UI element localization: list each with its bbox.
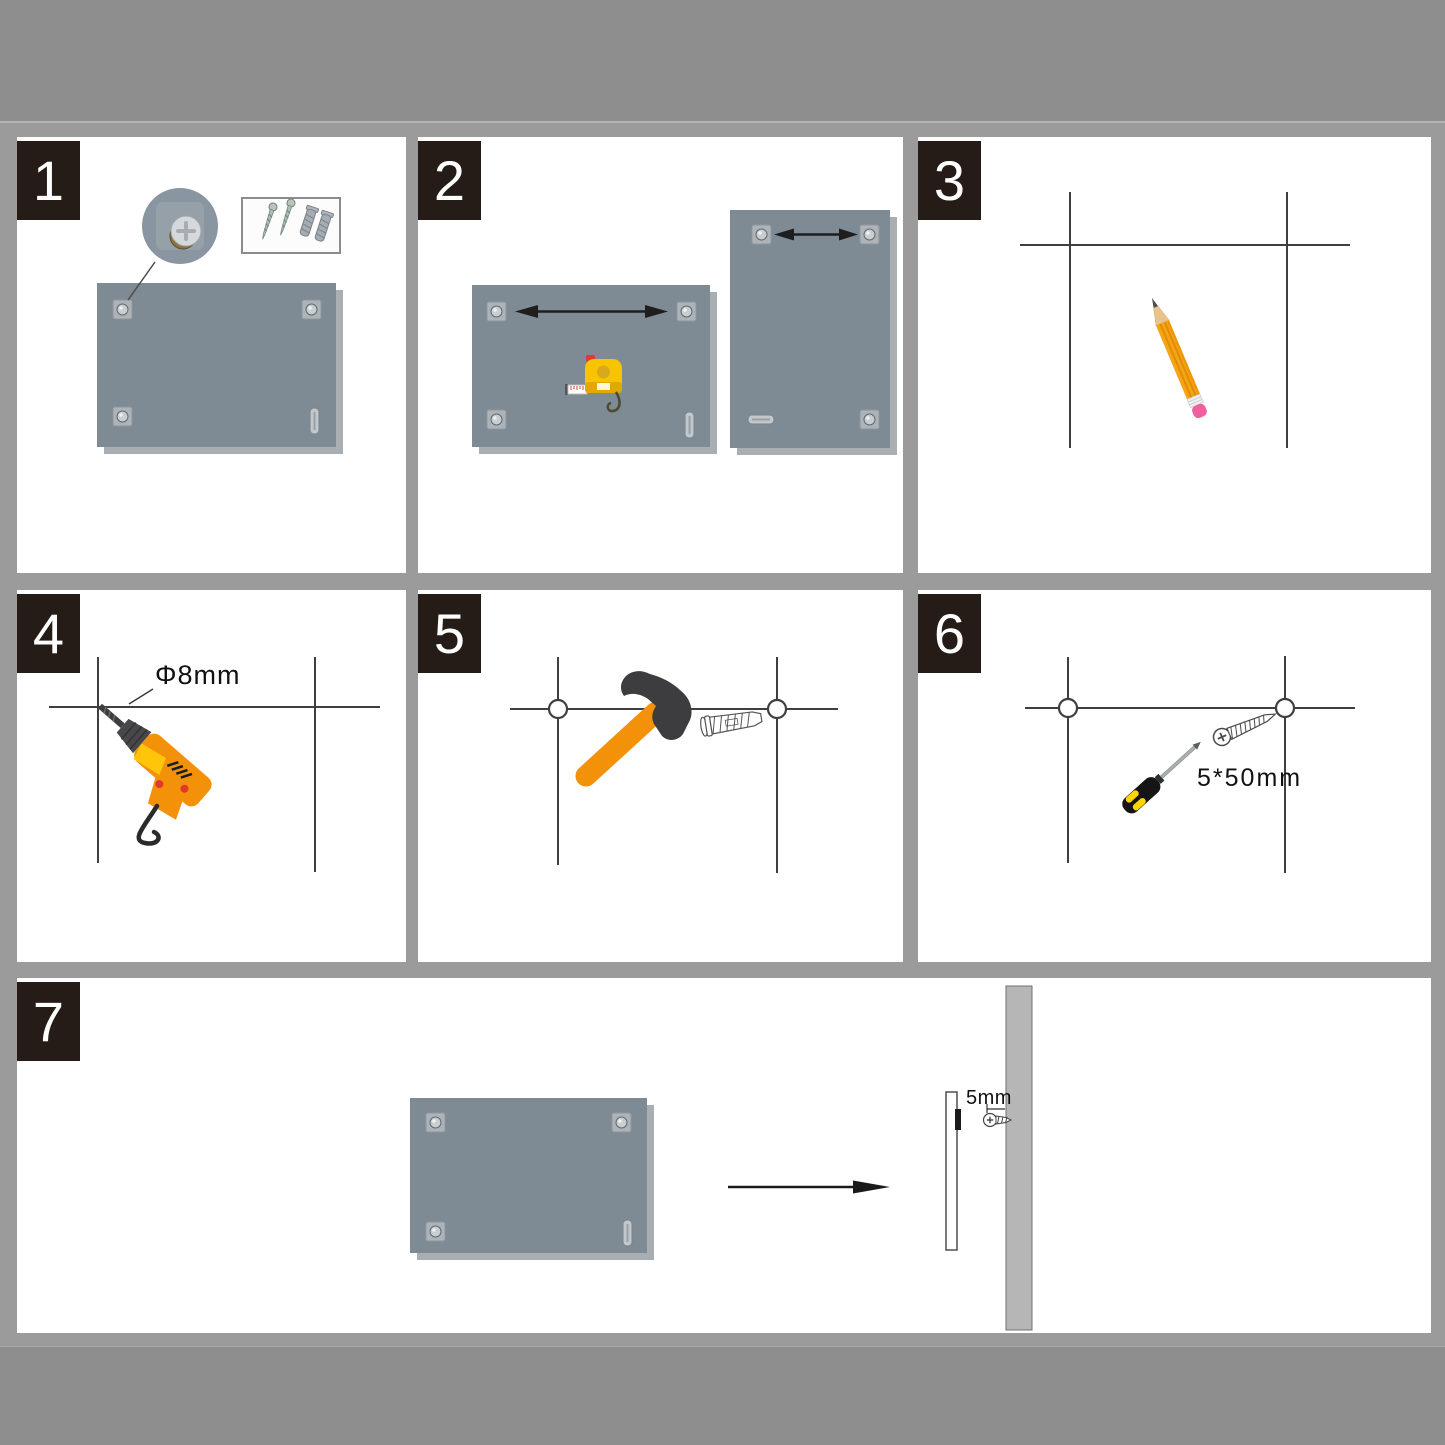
wall-anchor-icon [699,708,762,737]
pencil-icon [1146,295,1209,419]
step-7-illustration: 5mm [17,978,1431,1333]
board-face [97,283,336,447]
mounting-board [410,1098,654,1260]
drill-hole [1276,699,1294,717]
step-5-panel: 5 [418,590,903,962]
hammer-icon [586,671,692,776]
drill-hole [549,700,567,718]
corner-pad [113,407,132,426]
screwdriver-icon [1119,735,1207,817]
step-7-panel: 7 [17,978,1431,1333]
wall-section [1006,986,1032,1330]
wall-side-view: 5mm [946,986,1032,1330]
direction-arrow [728,1181,890,1194]
step-4-panel: 4 Φ8mm [17,590,406,962]
bracket-side-view [955,1109,961,1130]
step-6-panel: 6 [918,590,1431,962]
callout-line [129,689,153,704]
step-1-illustration [17,137,406,573]
screw-size-label: 5*50mm [1197,764,1302,792]
step-3-panel: 3 [918,137,1431,573]
gap-label: 5mm [966,1087,1012,1109]
instruction-page: 1 [0,0,1445,1445]
drill-hole [1059,699,1077,717]
step-4-illustration: Φ8mm [17,590,406,962]
screw-icon [1211,706,1279,748]
drill-hole [768,700,786,718]
step-3-illustration [918,137,1431,573]
portrait-board [730,210,897,455]
step-5-illustration [418,590,903,962]
corner-pad [302,300,321,319]
corner-pad [113,300,132,319]
mounting-board [97,283,343,454]
drill-diameter-label: Φ8mm [155,660,241,690]
step-2-illustration [418,137,903,573]
instruction-sheet: 1 [0,121,1445,1347]
drill-icon [72,693,215,828]
marking-lines [1020,192,1350,448]
landscape-board [472,285,717,454]
step-2-panel: 2 [418,137,903,573]
corner-fixing-magnifier [142,188,218,264]
step-6-illustration: 5*50mm [918,590,1431,962]
screws-and-anchors-box [242,198,340,253]
drill-cord [139,806,159,844]
step-1-panel: 1 [17,137,406,573]
marking-lines [1025,656,1355,873]
keyhole-slot [310,408,319,434]
